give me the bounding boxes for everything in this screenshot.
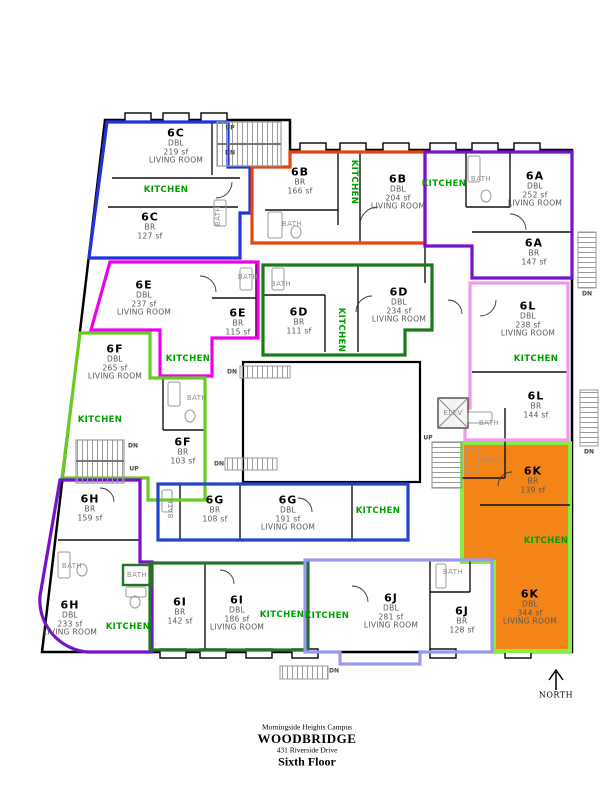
room-area: 144 sf [523,411,548,419]
kitchen-label-6d: KITCHEN [336,308,346,353]
bath-label-6b: BATH [282,220,302,228]
room-label-6j-dbl: 6J DBL 281 sf LIVING ROOM [364,592,418,629]
dn-label-south: DN [329,668,339,675]
room-label-6a-dbl: 6A DBL 252 sf LIVING ROOM [508,170,562,207]
room-label-6d-dbl: 6D DBL 234 sf LIVING ROOM [372,286,426,323]
room-area: 159 sf [77,514,102,522]
dn-label-top-stair: DN [225,150,235,157]
kitchen-label-6b: KITCHEN [349,160,359,205]
room-area: 108 sf [202,515,227,523]
room-label-6l-dbl: 6L DBL 238 sf LIVING ROOM [501,300,555,337]
bath-label-6l: BATH [479,419,499,427]
room-name: LIVING ROOM [372,315,426,323]
room-name: LIVING ROOM [503,617,557,625]
bath-label-6i: BATH [127,571,147,579]
kitchen-label-6i: KITCHEN [260,610,305,620]
room-label-6e-br: 6E BR 115 sf [225,307,250,336]
kitchen-label-6g: KITCHEN [356,506,401,516]
dn-label-east-lower: DN [584,449,594,456]
north-label: NORTH [539,691,573,700]
bath-label-6d: BATH [271,280,291,288]
room-label-6b-dbl: 6B DBL 204 sf LIVING ROOM [371,173,425,210]
label-overlay: 6C DBL 219 sf LIVING ROOM 6C BR 127 sf 6… [0,0,612,792]
room-label-6f-dbl: 6F DBL 265 sf LIVING ROOM [88,343,142,380]
bath-label-6k: BATH [480,456,500,464]
room-name: LIVING ROOM [261,523,315,531]
room-label-6f-br: 6F BR 103 sf [170,436,195,465]
room-area: 139 sf [520,486,545,494]
bath-label-6j: BATH [443,568,463,576]
bath-label-6g: BATH [167,498,175,518]
room-label-6i-dbl: 6I DBL 186 sf LIVING ROOM [210,594,264,631]
bath-label-6h: BATH [62,562,82,570]
floor-name: Sixth Floor [278,755,336,770]
room-label-6g-dbl: 6G DBL 191 sf LIVING ROOM [261,494,315,531]
room-label-6g-br: 6G BR 108 sf [202,494,227,523]
dn-label-left-stair: DN [128,443,138,450]
kitchen-label-6j: KITCHEN [305,611,350,621]
dn-label-east-upper: DN [582,291,592,298]
floor-plan-page: 6C DBL 219 sf LIVING ROOM 6C BR 127 sf 6… [0,0,612,792]
room-label-6e-dbl: 6E DBL 237 sf LIVING ROOM [117,279,171,316]
room-name: LIVING ROOM [88,372,142,380]
kitchen-label-6f: KITCHEN [78,415,123,425]
room-area: 115 sf [225,328,250,336]
room-label-6c-br: 6C BR 127 sf [137,211,162,240]
kitchen-label-6k: KITCHEN [524,536,569,546]
kitchen-label-6c: KITCHEN [144,185,189,195]
room-label-6c-dbl: 6C DBL 219 sf LIVING ROOM [149,127,203,164]
room-label-6d-br: 6D BR 111 sf [286,306,311,335]
room-area: 128 sf [449,626,474,634]
room-label-6h-br: 6H BR 159 sf [77,493,102,522]
room-label-6a-br: 6A BR 147 sf [521,237,546,266]
building-address: 431 Riverside Drive [277,746,338,755]
room-name: LIVING ROOM [371,202,425,210]
room-name: LIVING ROOM [43,628,97,636]
room-area: 166 sf [287,187,312,195]
up-label-elev-stair: UP [423,435,432,442]
room-area: 142 sf [167,617,192,625]
room-label-6k-dbl: 6K DBL 344 sf LIVING ROOM [503,588,557,625]
bath-label-6c: BATH [214,206,222,226]
room-name: LIVING ROOM [210,623,264,631]
room-name: LIVING ROOM [508,199,562,207]
kitchen-label-6l: KITCHEN [514,354,559,364]
room-label-6j-br: 6J BR 128 sf [449,605,474,634]
room-name: LIVING ROOM [149,156,203,164]
room-label-6l-br: 6L BR 144 sf [523,390,548,419]
room-label-6i-br: 6I BR 142 sf [167,596,192,625]
kitchen-label-6e: KITCHEN [166,354,211,364]
room-label-6h-dbl: 6H DBL 233 sf LIVING ROOM [43,599,97,636]
room-label-6b-br: 6B BR 166 sf [287,166,312,195]
room-label-6k-br: 6K BR 139 sf [520,465,545,494]
elevator-label: ELEV [443,409,462,417]
up-label-top-stair: UP [225,125,234,132]
dn-label-courtyard-top: DN [227,369,237,376]
kitchen-label-6h: KITCHEN [106,622,151,632]
room-name: LIVING ROOM [117,308,171,316]
dn-label-courtyard-bottom: DN [214,461,224,468]
bath-label-6a: BATH [471,175,491,183]
bath-label-6e: BATH [238,273,258,281]
room-name: LIVING ROOM [501,329,555,337]
room-area: 103 sf [170,457,195,465]
room-name: LIVING ROOM [364,621,418,629]
room-area: 127 sf [137,232,162,240]
room-area: 147 sf [521,258,546,266]
bath-label-6f: BATH [187,394,207,402]
up-label-left-stair: UP [129,466,138,473]
room-area: 111 sf [286,327,311,335]
kitchen-label-6a: KITCHEN [422,179,467,189]
